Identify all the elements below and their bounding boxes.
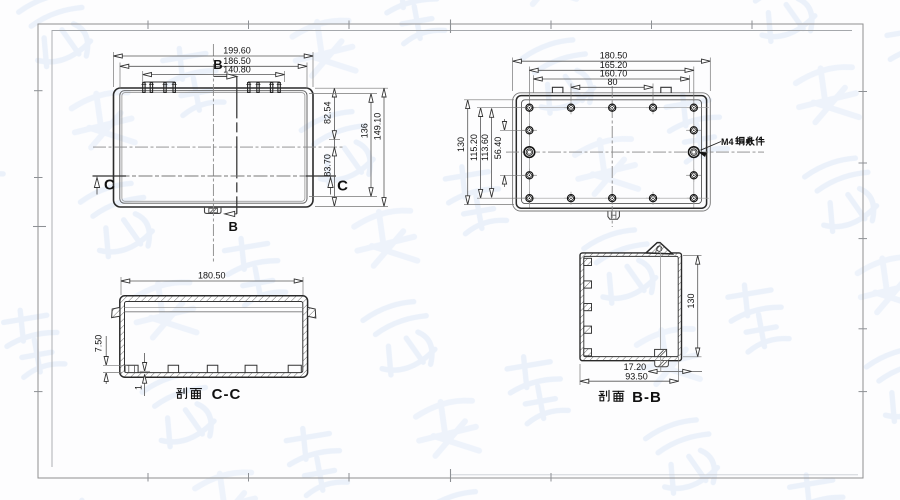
svg-text:180.50: 180.50: [198, 271, 226, 281]
svg-text:B: B: [213, 57, 222, 72]
svg-text:1: 1: [134, 385, 144, 390]
svg-text:149.10: 149.10: [373, 113, 383, 141]
svg-text:B: B: [229, 219, 238, 234]
svg-text:83.70: 83.70: [323, 154, 333, 177]
svg-text:130: 130: [686, 293, 696, 308]
svg-text:93.50: 93.50: [625, 371, 648, 381]
svg-text:C: C: [337, 178, 348, 195]
svg-text:140.80: 140.80: [223, 64, 251, 74]
svg-text:113.60: 113.60: [480, 134, 490, 161]
svg-text:80: 80: [607, 77, 617, 87]
svg-text:M4: M4: [721, 137, 734, 147]
svg-text:115.20: 115.20: [469, 134, 479, 161]
svg-text:82.54: 82.54: [323, 101, 333, 124]
svg-text:130: 130: [456, 137, 466, 152]
svg-text:7.50: 7.50: [94, 335, 104, 353]
svg-text:B-B: B-B: [632, 389, 662, 406]
svg-text:136: 136: [360, 123, 370, 138]
svg-text:C-C: C-C: [212, 386, 242, 403]
svg-text:56.40: 56.40: [493, 137, 503, 160]
svg-text:199.60: 199.60: [223, 46, 251, 56]
svg-text:C: C: [104, 177, 115, 194]
